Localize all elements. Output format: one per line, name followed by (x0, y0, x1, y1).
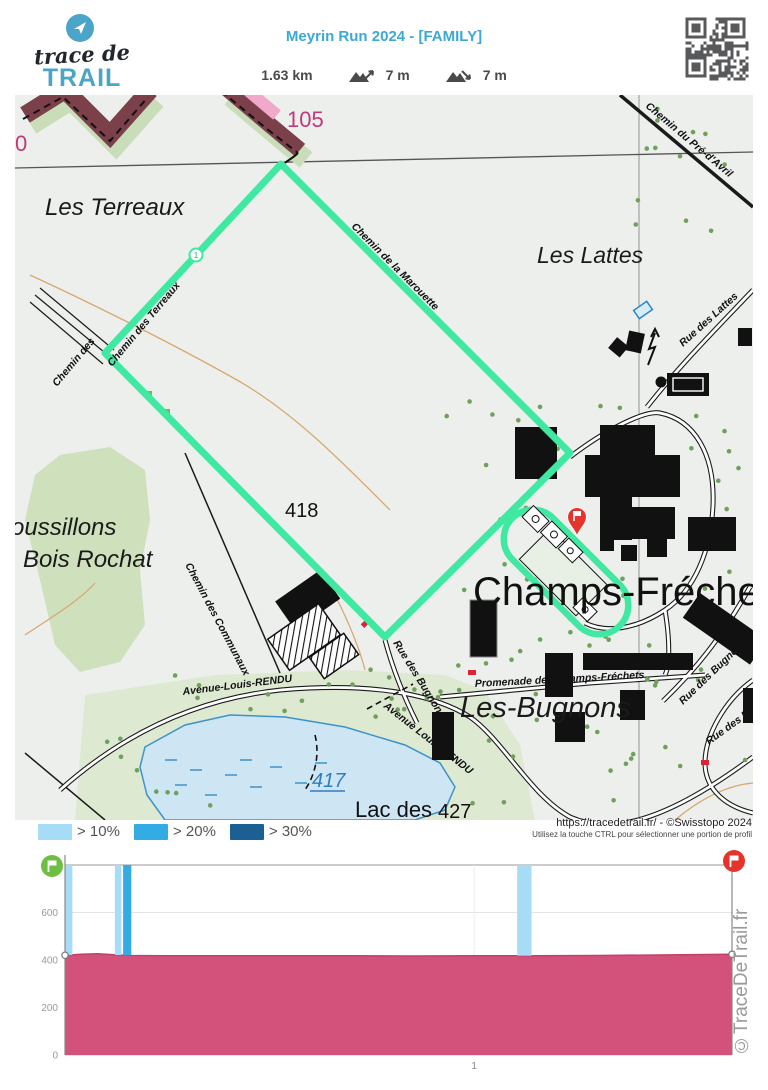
label-champs-frechets: Champs-Fréchets (473, 570, 753, 614)
elevation-profile-chart[interactable]: 02004006008001 (0, 845, 768, 1085)
road-pre-davril (620, 95, 753, 207)
label-communaux: Chemin des Communaux (182, 561, 252, 679)
logo-arrow-icon (66, 14, 94, 42)
legend-item-30: > 30% (230, 823, 312, 840)
label-rue-lattes: Rue des Lattes (677, 290, 741, 349)
vineyard-structures (23, 95, 306, 164)
descent-mountain-icon (446, 67, 473, 83)
chart-start-marker[interactable] (41, 855, 63, 877)
legend-item-20: > 20% (134, 823, 216, 840)
label-pre-davril: Chemin du Pré-d'Avril (643, 100, 736, 180)
km-marker[interactable]: 1 (190, 249, 203, 262)
label-chemin-terreaux: Chemin des Terreaux (105, 279, 183, 369)
pool-icon (634, 301, 653, 318)
qr-code (684, 16, 750, 87)
label-alt-105: 105 (287, 107, 324, 132)
ascent-mountain-icon (349, 67, 376, 83)
label-chemin-des: Chemin des (50, 336, 98, 389)
gradient-legend: > 10% > 20% > 30% (38, 823, 312, 840)
route-map[interactable]: 1 Les Terreaux Les Lattes Champs-Fréchet… (15, 95, 753, 820)
map-attribution: https://tracedetrail.fr/ - ©Swisstopo 20… (532, 818, 752, 840)
legend-swatch-20 (134, 824, 168, 840)
svg-text:1: 1 (194, 251, 199, 260)
svg-text:0: 0 (52, 1051, 58, 1062)
label-alt-427: 427 (438, 801, 471, 820)
label-alt-417: 417 (312, 770, 346, 792)
svg-text:400: 400 (41, 956, 58, 967)
svg-text:1: 1 (471, 1061, 477, 1072)
label-les-terreaux: Les Terreaux (45, 194, 185, 221)
ascent-value: 7 m (386, 67, 410, 83)
label-roussillons: oussillons (15, 514, 116, 541)
label-marouette: Chemin de la Marouette (349, 221, 441, 313)
descent-value: 7 m (483, 67, 507, 83)
label-alt-418: 418 (285, 500, 318, 522)
label-rue-b: Rue des B (704, 707, 753, 747)
chart-end-marker[interactable] (723, 850, 745, 872)
attribution-hint: Utilisez la touche CTRL pour sélectionne… (532, 829, 752, 840)
label-les-bugnons: Les-Bugnons (460, 692, 631, 724)
distance-value: 1.63 km (261, 67, 312, 83)
label-les-lattes: Les Lattes (537, 242, 644, 268)
page: { "header": { "logo": { "line1": "trace … (0, 0, 768, 1085)
label-bois-rochat: Bois Rochat (23, 546, 154, 573)
svg-text:600: 600 (41, 908, 58, 919)
legend-swatch-10 (38, 824, 72, 840)
legend-item-10: > 10% (38, 823, 120, 840)
logo-text-trail: TRAIL (22, 64, 142, 93)
label-alt-0: 0 (15, 131, 27, 156)
boundary-line (15, 152, 753, 168)
attribution-link[interactable]: https://tracedetrail.fr/ - ©Swisstopo 20… (532, 818, 752, 829)
page-title: Meyrin Run 2024 - [FAMILY] (184, 28, 584, 45)
legend-swatch-30 (230, 824, 264, 840)
svg-text:200: 200 (41, 1003, 58, 1014)
label-lac-des: Lac des (355, 797, 432, 820)
watermark: ©TraceDeTrail.fr (731, 885, 753, 1055)
